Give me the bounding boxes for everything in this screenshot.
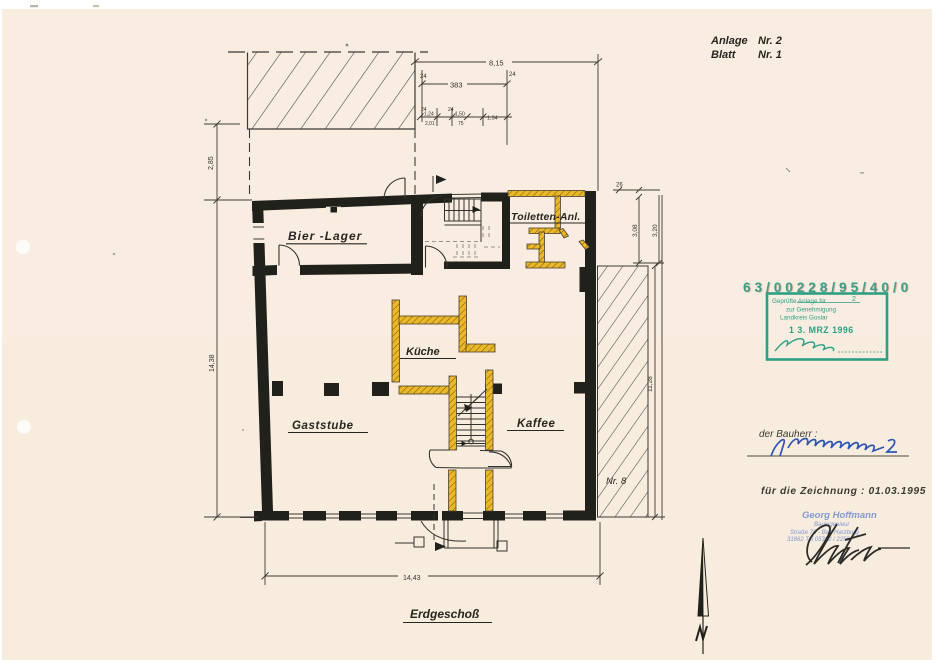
svg-text:3,20: 3,20 bbox=[652, 224, 659, 237]
svg-text:24: 24 bbox=[420, 74, 427, 80]
svg-text:31862 Tel 05322 / 2256: 31862 Tel 05322 / 2256 bbox=[787, 537, 850, 543]
svg-text:24: 24 bbox=[509, 72, 516, 78]
svg-text:26: 26 bbox=[616, 183, 623, 189]
svg-text:zur Genehmigung: zur Genehmigung bbox=[786, 307, 837, 314]
svg-text:Gaststube: Gaststube bbox=[292, 420, 354, 432]
svg-text:2,85: 2,85 bbox=[208, 156, 215, 170]
svg-text:8,15: 8,15 bbox=[489, 59, 504, 68]
svg-text:14,38: 14,38 bbox=[209, 354, 216, 372]
svg-text:75: 75 bbox=[458, 121, 464, 127]
svg-text:14,43: 14,43 bbox=[403, 575, 421, 582]
svg-text:Kaffee: Kaffee bbox=[517, 418, 556, 430]
svg-text:der Bauherr :: der Bauherr : bbox=[759, 429, 818, 440]
svg-text:24: 24 bbox=[448, 107, 454, 113]
svg-text:Geprüfte Anlage Nr.: Geprüfte Anlage Nr. bbox=[772, 298, 828, 305]
svg-text:11,28: 11,28 bbox=[647, 376, 654, 392]
svg-text:Küche: Küche bbox=[406, 346, 440, 358]
svg-text:3,08: 3,08 bbox=[632, 224, 639, 237]
svg-text:2,01: 2,01 bbox=[425, 121, 435, 127]
svg-text:2: 2 bbox=[852, 296, 856, 303]
svg-text:Nr. 2: Nr. 2 bbox=[758, 35, 782, 47]
svg-text:für die Zeichnung : 01.03.1995: für die Zeichnung : 01.03.1995 bbox=[761, 486, 926, 497]
svg-text:1,50: 1,50 bbox=[455, 112, 465, 118]
svg-text:1 3. MRZ 1996: 1 3. MRZ 1996 bbox=[789, 325, 854, 335]
svg-text:Straße 76 - Bad Harzburg: Straße 76 - Bad Harzburg bbox=[790, 530, 859, 536]
svg-text:Nr. 8: Nr. 8 bbox=[606, 476, 627, 487]
svg-text:1,34: 1,34 bbox=[487, 116, 498, 122]
svg-text:1,24: 1,24 bbox=[424, 112, 434, 118]
svg-text:Landkreis Goslar: Landkreis Goslar bbox=[780, 315, 828, 322]
svg-text:Blatt: Blatt bbox=[711, 49, 737, 61]
svg-text:Georg Hoffmann: Georg Hoffmann bbox=[802, 510, 877, 521]
svg-text:383: 383 bbox=[450, 81, 463, 90]
svg-text:Erdgeschoß: Erdgeschoß bbox=[410, 607, 479, 621]
svg-text:Nr. 1: Nr. 1 bbox=[758, 49, 782, 61]
svg-text:Bier -Lager: Bier -Lager bbox=[288, 229, 363, 243]
svg-text:Toiletten-Anl.: Toiletten-Anl. bbox=[511, 211, 581, 223]
svg-text:Anlage: Anlage bbox=[710, 35, 748, 47]
